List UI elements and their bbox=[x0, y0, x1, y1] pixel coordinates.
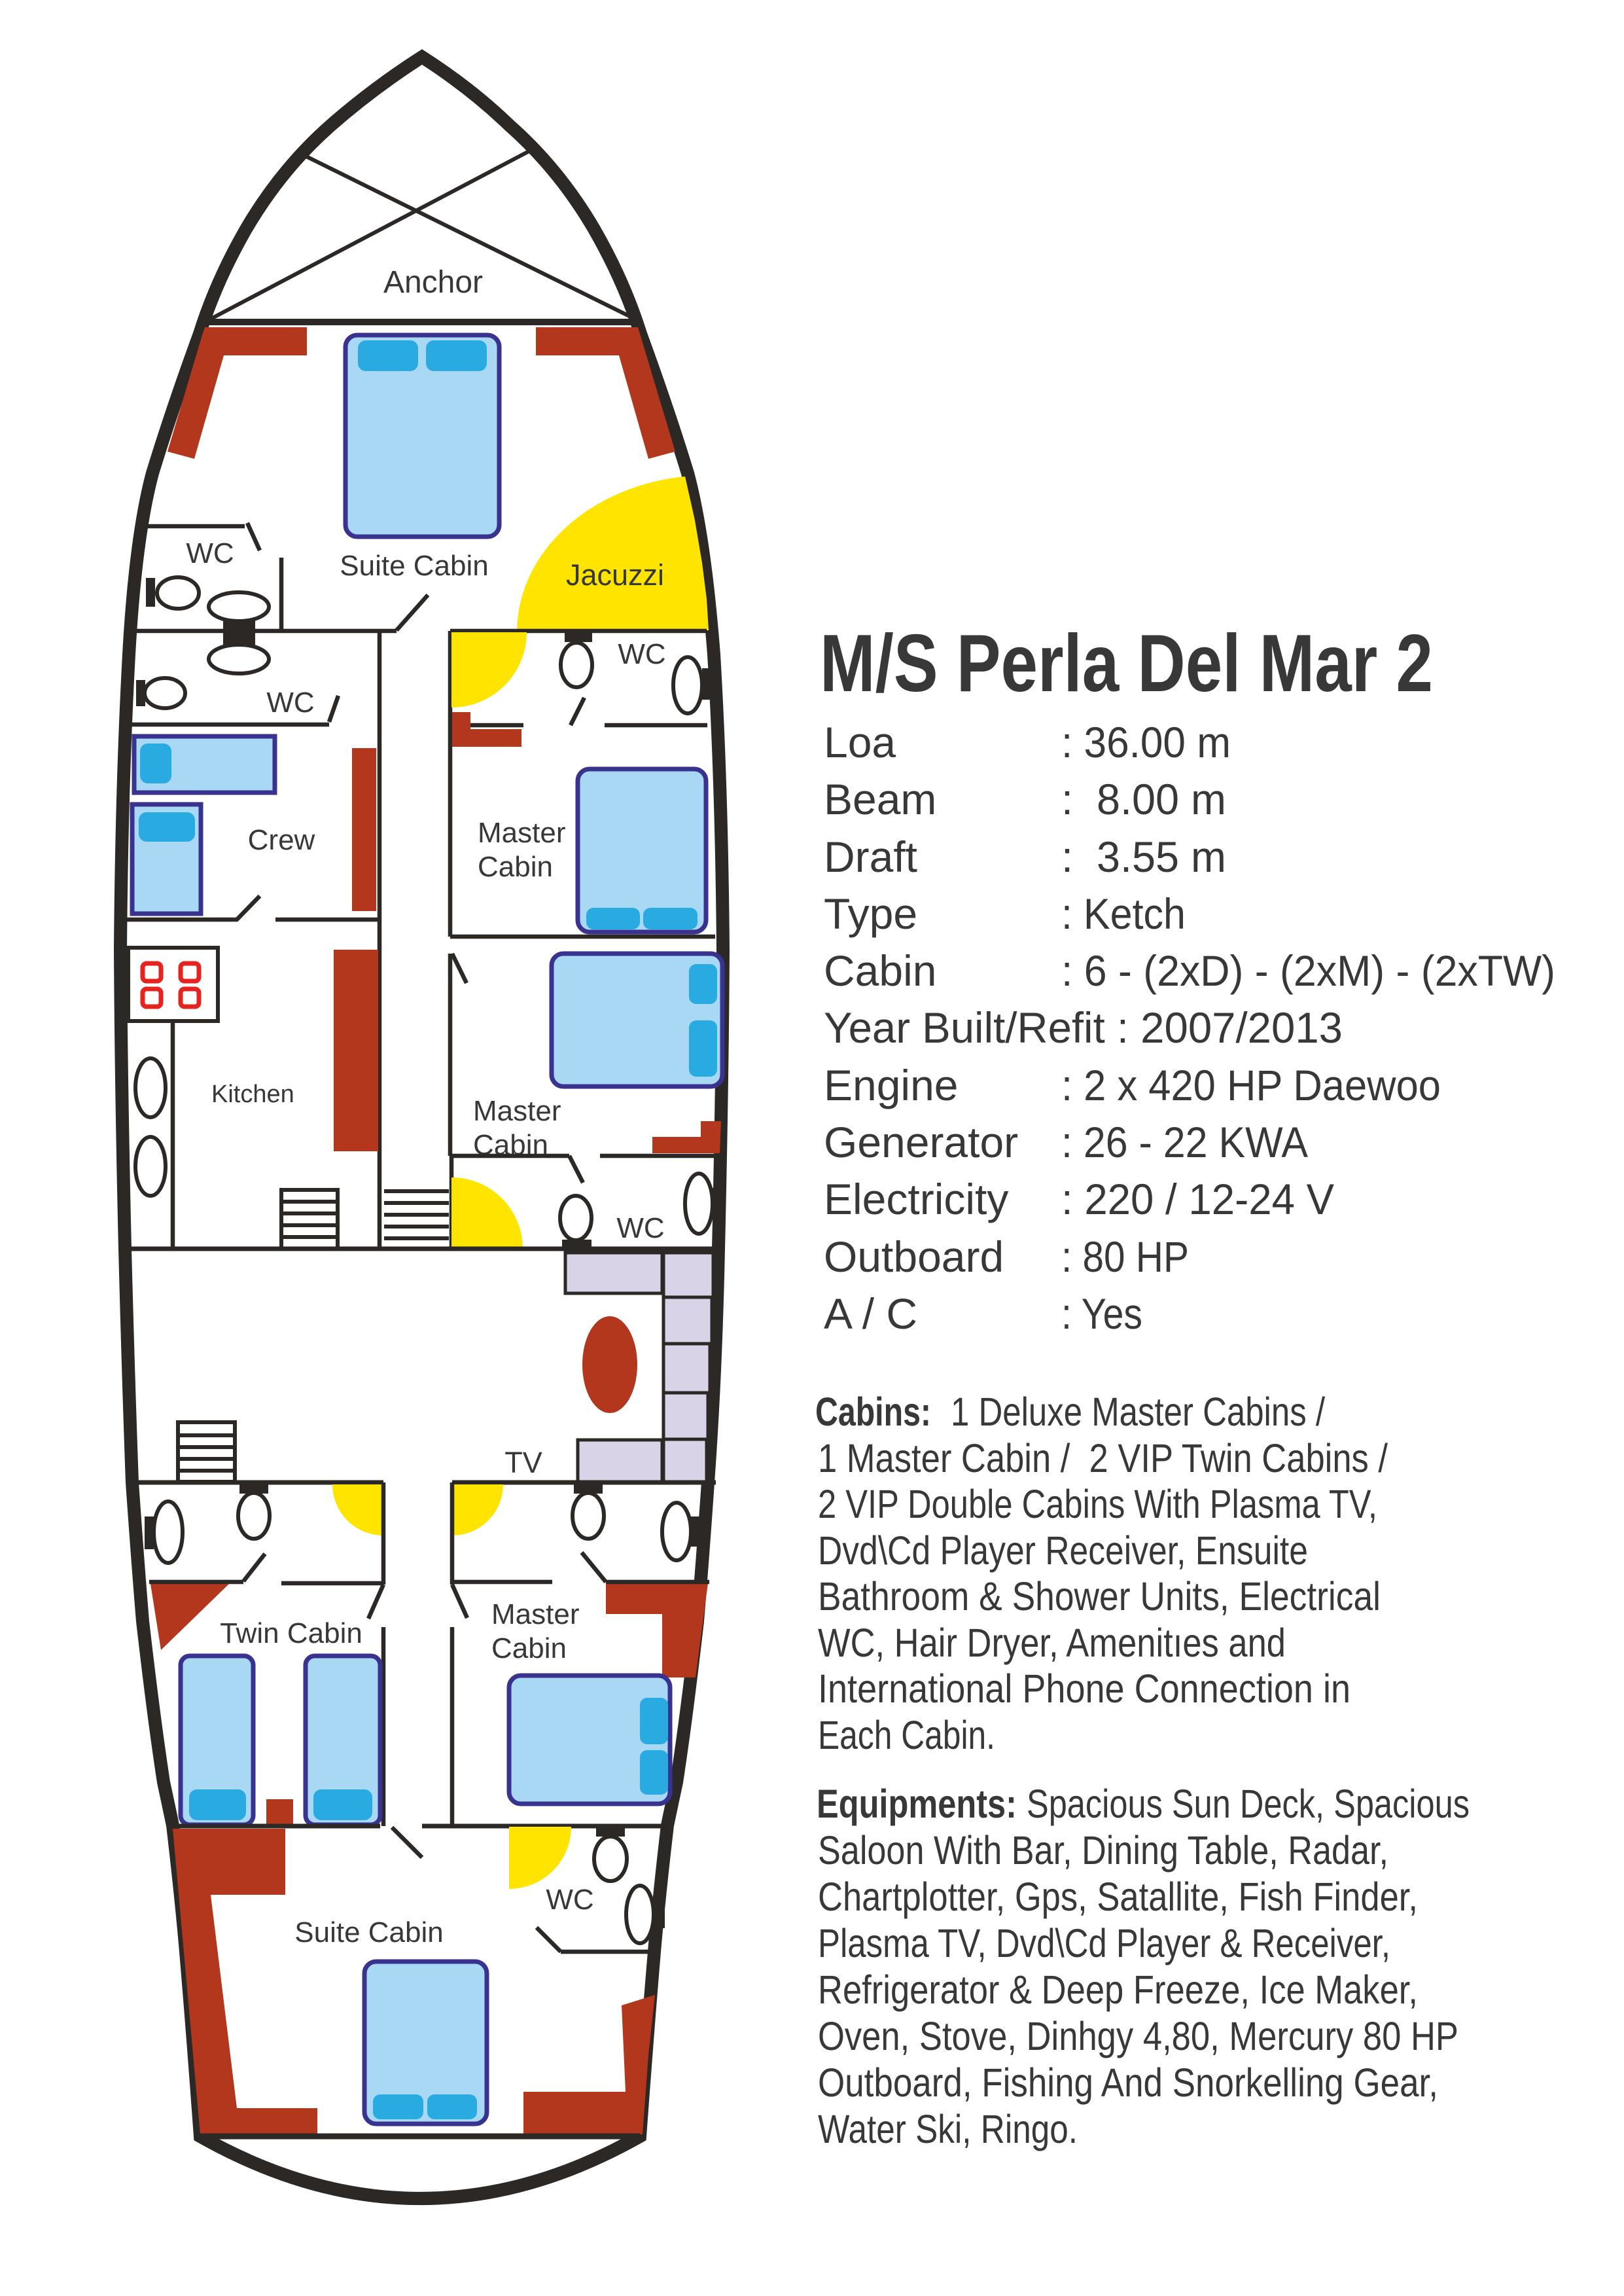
svg-text:Engine: Engine bbox=[824, 1061, 959, 1109]
svg-text:Twin Cabin: Twin Cabin bbox=[220, 1617, 362, 1649]
svg-text:Equipments:: Equipments: bbox=[817, 1782, 1017, 1826]
svg-text:TV: TV bbox=[504, 1446, 542, 1479]
svg-text:Beam: Beam bbox=[824, 775, 936, 823]
svg-text:Generator: Generator bbox=[824, 1118, 1018, 1166]
svg-text:Electricity: Electricity bbox=[824, 1175, 1008, 1223]
svg-text:Crew: Crew bbox=[248, 824, 315, 856]
svg-text:Cabin: Cabin bbox=[478, 851, 553, 883]
svg-text:1 Deluxe Master Cabins /: 1 Deluxe Master Cabins / bbox=[951, 1390, 1325, 1434]
svg-text:: Yes: : Yes bbox=[1061, 1289, 1142, 1338]
svg-text:Suite Cabin: Suite Cabin bbox=[340, 550, 488, 582]
svg-text:A / C: A / C bbox=[824, 1289, 917, 1338]
svg-text:Saloon With Bar, Dining Table,: Saloon With Bar, Dining Table, Radar, bbox=[818, 1828, 1388, 1873]
svg-text:: 80 HP: : 80 HP bbox=[1061, 1232, 1189, 1281]
svg-text:WC: WC bbox=[546, 1884, 593, 1916]
svg-text:WC: WC bbox=[618, 638, 665, 670]
svg-text:: Ketch: : Ketch bbox=[1061, 889, 1186, 938]
svg-text:M/S Perla Del Mar 2: M/S Perla Del Mar 2 bbox=[820, 619, 1433, 709]
svg-text:: 8.00 m: : 8.00 m bbox=[1061, 775, 1226, 823]
svg-text:: 26 - 22 KWA: : 26 - 22 KWA bbox=[1061, 1118, 1308, 1166]
svg-text:Anchor: Anchor bbox=[383, 265, 483, 300]
svg-text:Kitchen: Kitchen bbox=[211, 1081, 294, 1108]
svg-text:Master: Master bbox=[491, 1598, 579, 1630]
svg-text:Spacious Sun Deck, Spacious: Spacious Sun Deck, Spacious bbox=[1027, 1782, 1470, 1826]
svg-text:: 6 - (2xD) - (2xM) - (2xTW): : 6 - (2xD) - (2xM) - (2xTW) bbox=[1061, 946, 1555, 995]
svg-text:Suite Cabin: Suite Cabin bbox=[294, 1916, 443, 1948]
svg-text:Outboard: Outboard bbox=[824, 1232, 1004, 1281]
svg-text:WC: WC bbox=[186, 537, 234, 569]
svg-text:Type: Type bbox=[824, 889, 917, 938]
svg-text:1 Master Cabin / 2 VIP Twin C: 1 Master Cabin / 2 VIP Twin Cabins / bbox=[818, 1436, 1388, 1480]
svg-text:Chartplotter, Gps, Satallite,: Chartplotter, Gps, Satallite, Fish Finde… bbox=[818, 1874, 1418, 1919]
svg-text:Jacuzzi: Jacuzzi bbox=[566, 558, 664, 592]
svg-text:Year Built/Refit : 2007/2013: Year Built/Refit : 2007/2013 bbox=[824, 1003, 1343, 1052]
svg-text:International Phone Connection: International Phone Connection in bbox=[818, 1666, 1350, 1711]
svg-text:Outboard, Fishing And Snorkell: Outboard, Fishing And Snorkelling Gear, bbox=[818, 2060, 1438, 2105]
svg-text:Cabin: Cabin bbox=[824, 946, 936, 995]
svg-text:Draft: Draft bbox=[824, 833, 917, 881]
svg-text:: 2 x 420 HP Daewoo: : 2 x 420 HP Daewoo bbox=[1061, 1061, 1441, 1109]
svg-text:Cabin: Cabin bbox=[491, 1632, 567, 1664]
svg-text:Each Cabin.: Each Cabin. bbox=[818, 1713, 995, 1757]
svg-text:Refrigerator & Deep Freeze, Ic: Refrigerator & Deep Freeze, Ice Maker, bbox=[818, 1967, 1418, 2012]
svg-text:Bathroom & Shower Units, Elect: Bathroom & Shower Units, Electrical bbox=[818, 1574, 1381, 1619]
svg-text:Plasma TV, Dvd\Cd Player & Rec: Plasma TV, Dvd\Cd Player & Receiver, bbox=[818, 1921, 1390, 1965]
svg-text:Cabins:: Cabins: bbox=[815, 1390, 931, 1434]
svg-text:Loa: Loa bbox=[824, 718, 896, 766]
svg-text:WC: WC bbox=[266, 687, 314, 719]
svg-text:Oven, Stove, Dinhgy 4,80, Merc: Oven, Stove, Dinhgy 4,80, Mercury 80 HP bbox=[818, 2014, 1458, 2058]
svg-text:2 VIP Double Cabins With Plasm: 2 VIP Double Cabins With Plasma TV, bbox=[818, 1482, 1377, 1526]
svg-text:: 220 / 12-24 V: : 220 / 12-24 V bbox=[1061, 1175, 1334, 1223]
svg-text:Water Ski, Ringo.: Water Ski, Ringo. bbox=[818, 2107, 1078, 2151]
svg-text:Master: Master bbox=[473, 1095, 561, 1127]
svg-text:WC: WC bbox=[616, 1212, 664, 1244]
svg-text:: 3.55 m: : 3.55 m bbox=[1061, 833, 1226, 881]
svg-text:Dvd\Cd Player Receiver, Ensuit: Dvd\Cd Player Receiver, Ensuite bbox=[818, 1528, 1308, 1573]
svg-text:: 36.00 m: : 36.00 m bbox=[1061, 718, 1231, 766]
svg-text:Master: Master bbox=[478, 817, 565, 849]
svg-text:WC, Hair Dryer, Amenitıes and: WC, Hair Dryer, Amenitıes and bbox=[818, 1621, 1286, 1665]
